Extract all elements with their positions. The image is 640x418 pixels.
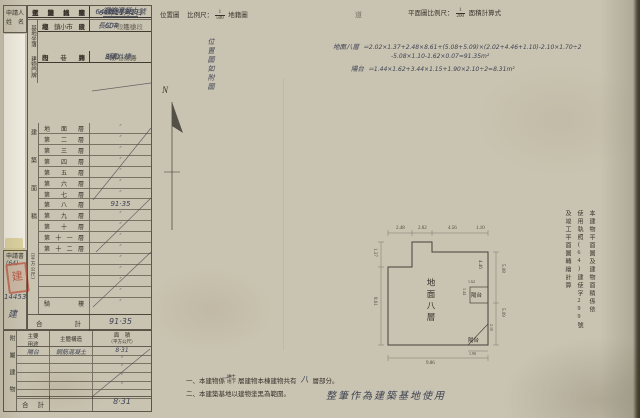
calc-line2: -5.08×1.10-1.62×0.07=91.35m² (391, 53, 635, 60)
table-row: 第八層 91·35 (39, 199, 151, 210)
scale-denominator: 500 (215, 16, 225, 21)
table-row: ″ (17, 373, 151, 382)
floor-plan-outline (368, 212, 543, 372)
floor-label (39, 287, 90, 297)
floor-label: 地面層 (39, 123, 90, 133)
footnote1-middle: 層建物本棟建物共有 (238, 375, 297, 385)
building-info-table: 測量日期 64年11月1日 基地坐落 鄉鎮市區 中 區 段小段 長江 (27, 5, 152, 330)
table-row: 陽台 鋼筋混凝土 8·31 (17, 347, 151, 356)
floor-label (39, 254, 90, 264)
plan-scale-label: 平面圖比例尺： (408, 10, 454, 17)
stray-character: 道 (355, 12, 362, 19)
handwritten-site-usage-note: 整筆作為建築基地使用 (326, 387, 446, 402)
floor-value: ″ (90, 210, 151, 220)
annex-area: ″ (93, 373, 151, 381)
annex-area: 8·31 (93, 347, 151, 355)
annex-header-use: 主要 用途 (17, 331, 50, 346)
footnote1-suffix: 層部分。 (313, 375, 339, 385)
calc-line3: ＝1.44×1.62+3.44×1.15+1.90×2.10÷2=8.31m² (368, 66, 515, 73)
annex-header-structure: 主體構造 (50, 331, 93, 346)
floor-value: ″ (90, 265, 151, 275)
annex-structure (50, 356, 93, 364)
table-row: ″ (39, 287, 151, 298)
floor-label: 第十一層 (39, 232, 90, 242)
annex-area: ″ (93, 364, 151, 372)
location-map-suffix: 地籍圖 (228, 12, 248, 19)
row-label: 門牌 (38, 51, 90, 62)
floor-value: ″ (90, 298, 151, 314)
redacted-strip (4, 34, 25, 248)
scale-fraction: 1500 (215, 10, 225, 21)
calc-line3-label: 陽台 (351, 65, 364, 73)
floor-value: ″ (90, 243, 151, 253)
stack-above-ground: 地上 (227, 375, 236, 380)
floor-total-label: 合計 (28, 315, 90, 331)
dim-right-2: 5.08 (500, 264, 505, 273)
floor-label: 第六層 (39, 178, 90, 188)
floor-label: 第九層 (39, 210, 90, 220)
annex-use (17, 382, 50, 390)
annex-area: ″ (93, 382, 151, 390)
row-typed-suffix: 地號 (123, 21, 136, 31)
dim-right-1: 4.46 (477, 260, 482, 269)
table-row: 第三層 ″ (39, 145, 151, 156)
table-row: 第十一層 ″ (39, 232, 151, 243)
floor-area-group-label: 建築面積 （平方公尺） (28, 123, 39, 314)
dim-bottom: 9.86 (426, 361, 435, 366)
floor-label: 第五層 (39, 167, 90, 177)
north-label: N (162, 86, 168, 95)
table-row: 第五層 ″ (39, 167, 151, 178)
floor-label (39, 265, 90, 275)
floor-value: ″ (90, 189, 151, 199)
plan-balcony-label: 陽台 (471, 291, 482, 299)
plan-scale-fraction: 1200 (456, 8, 466, 19)
annex-use: 陽台 (17, 347, 50, 355)
table-row: 第十層 ″ (39, 221, 151, 232)
floor-value: ″ (90, 276, 151, 286)
basis-note-col3: 及竣工平面圖轉繪計算 (563, 210, 572, 355)
stack-below-ground: 地下 (227, 380, 236, 385)
table-row: ″ (17, 382, 151, 391)
annex-building-table: 附屬建物 主要 用途 主體構造 面 積 （平方公尺） 陽台 鋼筋混凝土 8·31 (3, 330, 152, 412)
footnote-1: 一、本建物係 地上 地下 層建物本棟建物共有 八 層部分。 (186, 374, 486, 385)
floor-total-value: 91·35 (90, 315, 151, 331)
footnote1-prefix: 一、本建物係 (186, 375, 225, 385)
annex-structure: 鋼筋混凝土 (50, 347, 93, 355)
annex-use (17, 364, 50, 372)
location-map-label: 位置圖 (160, 12, 180, 19)
application-doc-label: 申請書 (4, 251, 26, 260)
row-hand-value: 8號八樓 (105, 52, 130, 62)
site-location-group: 基地坐落 鄉鎮市區 中 區 段小段 長江 段 小段 (28, 20, 151, 51)
floor-area-title: 建築面積 (29, 129, 38, 241)
row-label: 使用執照 (28, 6, 90, 17)
annex-group-label: 附屬建物 (4, 335, 16, 403)
floor-label (39, 276, 90, 286)
basis-note: 本建物平面圖及建物面積係依 使用執照(64)建使字299號 及竣工平面圖轉繪計算 (560, 210, 596, 355)
annex-header-area-l1: 面 積 (93, 331, 151, 339)
address-group-label: 建物門牌 (28, 51, 38, 83)
row-label: 地號 (38, 20, 90, 31)
site-group-label: 基地坐落 (28, 20, 38, 51)
annex-area: ″ (93, 356, 151, 364)
dim-triangle-w: 1.90 (469, 352, 476, 356)
floor-label: 第二層 (39, 134, 90, 144)
paper-crease (283, 78, 285, 350)
applicant-label-line2: 姓 名 (4, 17, 26, 26)
area-calculation-block: 地面八層 ＝2.02×1.37+2.48×8.61+(5.08+5.09)×(2… (333, 41, 635, 73)
table-row: 第四層 ″ (39, 156, 151, 167)
file-character: 建 (8, 307, 17, 320)
floor-area-rows: 地面層 ″ 第二層 ″ 第三層 ″ 第四層 ″ 第五層 ″ 第六層 ″ (39, 123, 151, 314)
dim-left-1: 1.37 (372, 248, 377, 257)
floor-total-row: 合計 91·35 (28, 314, 151, 331)
dim-balcony-h: 1.44 (462, 288, 466, 295)
floor-label: 第八層 (39, 199, 90, 209)
annex-header-area: 面 積 （平方公尺） (93, 331, 151, 346)
floor-label: 第十二層 (39, 243, 90, 253)
table-row: 使用執照 64建使字299號 (28, 6, 151, 18)
annex-structure (50, 373, 93, 381)
dim-right-3: 5.09 (500, 308, 505, 317)
dim-top-2: 2.02 (418, 226, 427, 231)
table-row: 第二層 ″ (39, 134, 151, 145)
plan-scale: 平面圖比例尺：1200 面積計算式 (408, 8, 501, 19)
floor-value: ″ (90, 178, 151, 188)
annex-header-area-l2: （平方公尺） (93, 339, 151, 345)
dim-top-1: 2.48 (396, 226, 405, 231)
file-number: 14453 (4, 293, 26, 301)
table-row: 騎樓 ″ (39, 298, 151, 315)
floor-value: ″ (90, 254, 151, 264)
table-row: 第七層 ″ (39, 189, 151, 200)
floor-value: ″ (90, 167, 151, 177)
table-row: 地號 604 地號 (38, 20, 151, 32)
address-group: 建物門牌 街路 湖和 街路 段巷弄 段/巷 弄 (28, 51, 151, 83)
footnote1-above-below-stack: 地上 地下 (227, 375, 236, 385)
location-map-note: 位置圖如附圖 (206, 38, 216, 92)
floor-label: 第十層 (39, 221, 90, 231)
table-row: ″ (17, 356, 151, 365)
scale-label: 比例尺： (187, 12, 213, 19)
scanned-survey-form: 申請人 姓 名 申請書 (64) 建 14453 建 測量日期 64年11月1日… (0, 0, 640, 418)
annex-structure (50, 364, 93, 372)
annex-use (17, 356, 50, 364)
plan-scale-suffix: 面積計算式 (469, 10, 502, 17)
application-doc-box: 申請書 (64) 建 14453 建 (3, 250, 27, 330)
floor-value: ″ (90, 134, 151, 144)
dim-triangle-h: 2.10 (489, 324, 493, 331)
annex-header-row: 主要 用途 主體構造 面 積 （平方公尺） (17, 331, 151, 347)
annex-total-spacer (50, 397, 93, 411)
dim-left-2: 8.61 (372, 297, 377, 306)
plan-interior-label: 地面八層 (425, 278, 437, 324)
table-row: ″ (39, 265, 151, 276)
table-row: 第六層 ″ (39, 178, 151, 189)
dim-balcony-w: 1.62 (468, 280, 475, 284)
annex-total-value: 8·31 (93, 397, 151, 411)
floor-plan-sketch: 地面八層 陽台 陽台 2.48 2.02 4.56 1.10 1.37 8.61… (368, 212, 543, 372)
basis-note-col2: 使用執照(64)建使字299號 (575, 210, 584, 355)
table-row: ″ (17, 364, 151, 373)
annex-group-label-col: 附屬建物 (4, 331, 17, 411)
table-row: 第十二層 ″ (39, 243, 151, 254)
floor-value: ″ (90, 123, 151, 133)
table-row: 第九層 ″ (39, 210, 151, 221)
table-row: ″ (39, 276, 151, 287)
annex-header-use-l1: 主要 (17, 332, 49, 340)
table-row: ″ (39, 254, 151, 265)
row-hand-value: 604 (105, 22, 118, 30)
floor-value: ″ (90, 287, 151, 297)
floor-label: 騎樓 (39, 298, 90, 314)
floor-area-unit: （平方公尺） (30, 250, 36, 283)
calc-line1: ＝2.02×1.37+2.48×8.61+(5.08+5.09)×(2.02+4… (363, 44, 582, 51)
annex-rows: 陽台 鋼筋混凝土 8·31 ″ ″ ″ (17, 347, 151, 399)
row-hand-value: 64建使字299號 (95, 7, 145, 17)
floor-label: 第三層 (39, 145, 90, 155)
annex-total-label: 合計 (17, 397, 50, 411)
applicant-label-line1: 申請人 (4, 8, 26, 17)
calc-line1-label: 地面八層 (333, 43, 359, 51)
dim-top-3: 4.56 (448, 226, 457, 231)
annex-use (17, 373, 50, 381)
floor-label: 第七層 (39, 189, 90, 199)
floor-value: ″ (90, 221, 151, 231)
annex-structure (50, 382, 93, 390)
applicant-name-box: 申請人 姓 名 (3, 5, 27, 33)
table-row: 門牌 8號八樓 (38, 51, 151, 63)
plan-scale-denominator: 200 (456, 14, 466, 19)
basis-note-col1: 本建物平面圖及建物面積係依 (587, 210, 596, 355)
floor-value: ″ (90, 145, 151, 155)
location-map-scale: 位置圖 比例尺：1500 地籍圖 (160, 10, 248, 21)
floor-value: ″ (90, 232, 151, 242)
annex-total-row: 合計 8·31 (17, 396, 151, 411)
floor-value: 91·35 (90, 199, 151, 209)
footnote1-hand-floor-count: 八 (301, 374, 309, 385)
table-row: 地面層 ″ (39, 123, 151, 134)
floor-label: 第四層 (39, 156, 90, 166)
floor-value: ″ (90, 156, 151, 166)
plan-balcony2-label: 陽台 (468, 336, 479, 344)
dim-top-4: 1.10 (476, 226, 485, 231)
